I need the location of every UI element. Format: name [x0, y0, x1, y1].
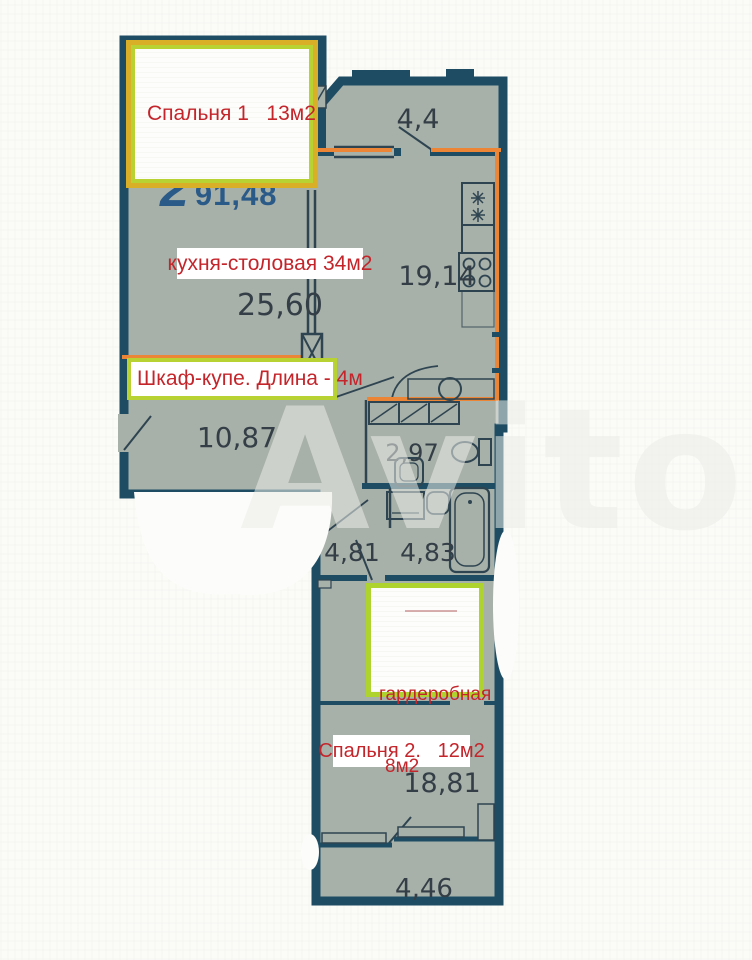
area-dining: 25,60 [237, 288, 323, 323]
wardrobe-label-text: Шкаф-купе. Длина - 4м [137, 367, 363, 391]
bedroom1-label-text: Спальня 1 13м2 [147, 102, 316, 126]
window-sill-top-1 [352, 70, 410, 81]
closet-door-sill [318, 580, 331, 588]
wardrobe-label-box: Шкаф-купе. Длина - 4м [127, 358, 337, 400]
area-kitchen: 19,14 [398, 261, 475, 292]
bedroom2-window-sill-1 [322, 833, 386, 843]
crossed-out-word [405, 610, 457, 612]
area-balcony-top: 4,4 [397, 104, 440, 135]
floor-plan-svg: 4,4 19,14 25,60 10,87 2,97 4,81 4,83 18,… [0, 0, 752, 960]
bedroom1-label-box: Спальня 1 13м2 [126, 40, 318, 188]
closet-label-line2: 8м2 [385, 756, 479, 778]
closet-label-line1: гардеробная [379, 684, 479, 706]
window-sill-top-2 [446, 69, 474, 80]
balcony-door-jamb-1 [492, 332, 502, 337]
whiteout-left-edge [301, 834, 319, 870]
avito-watermark: Avito [240, 372, 747, 568]
bedroom2-window-sill-2 [398, 827, 464, 837]
burner-star-2 [471, 208, 485, 222]
scanned-floor-plan-page: 4,4 19,14 25,60 10,87 2,97 4,81 4,83 18,… [0, 0, 752, 960]
bedroom2-side-window [478, 804, 494, 840]
burner-star-1 [471, 191, 485, 205]
area-balcony-bottom: 4,46 [395, 874, 453, 904]
kitchen-label-text: кухня-столовая 34м2 [168, 252, 373, 276]
kitchen-label-box: кухня-столовая 34м2 [177, 248, 363, 279]
closet-label-box: гардеробная 8м2 [366, 583, 484, 697]
